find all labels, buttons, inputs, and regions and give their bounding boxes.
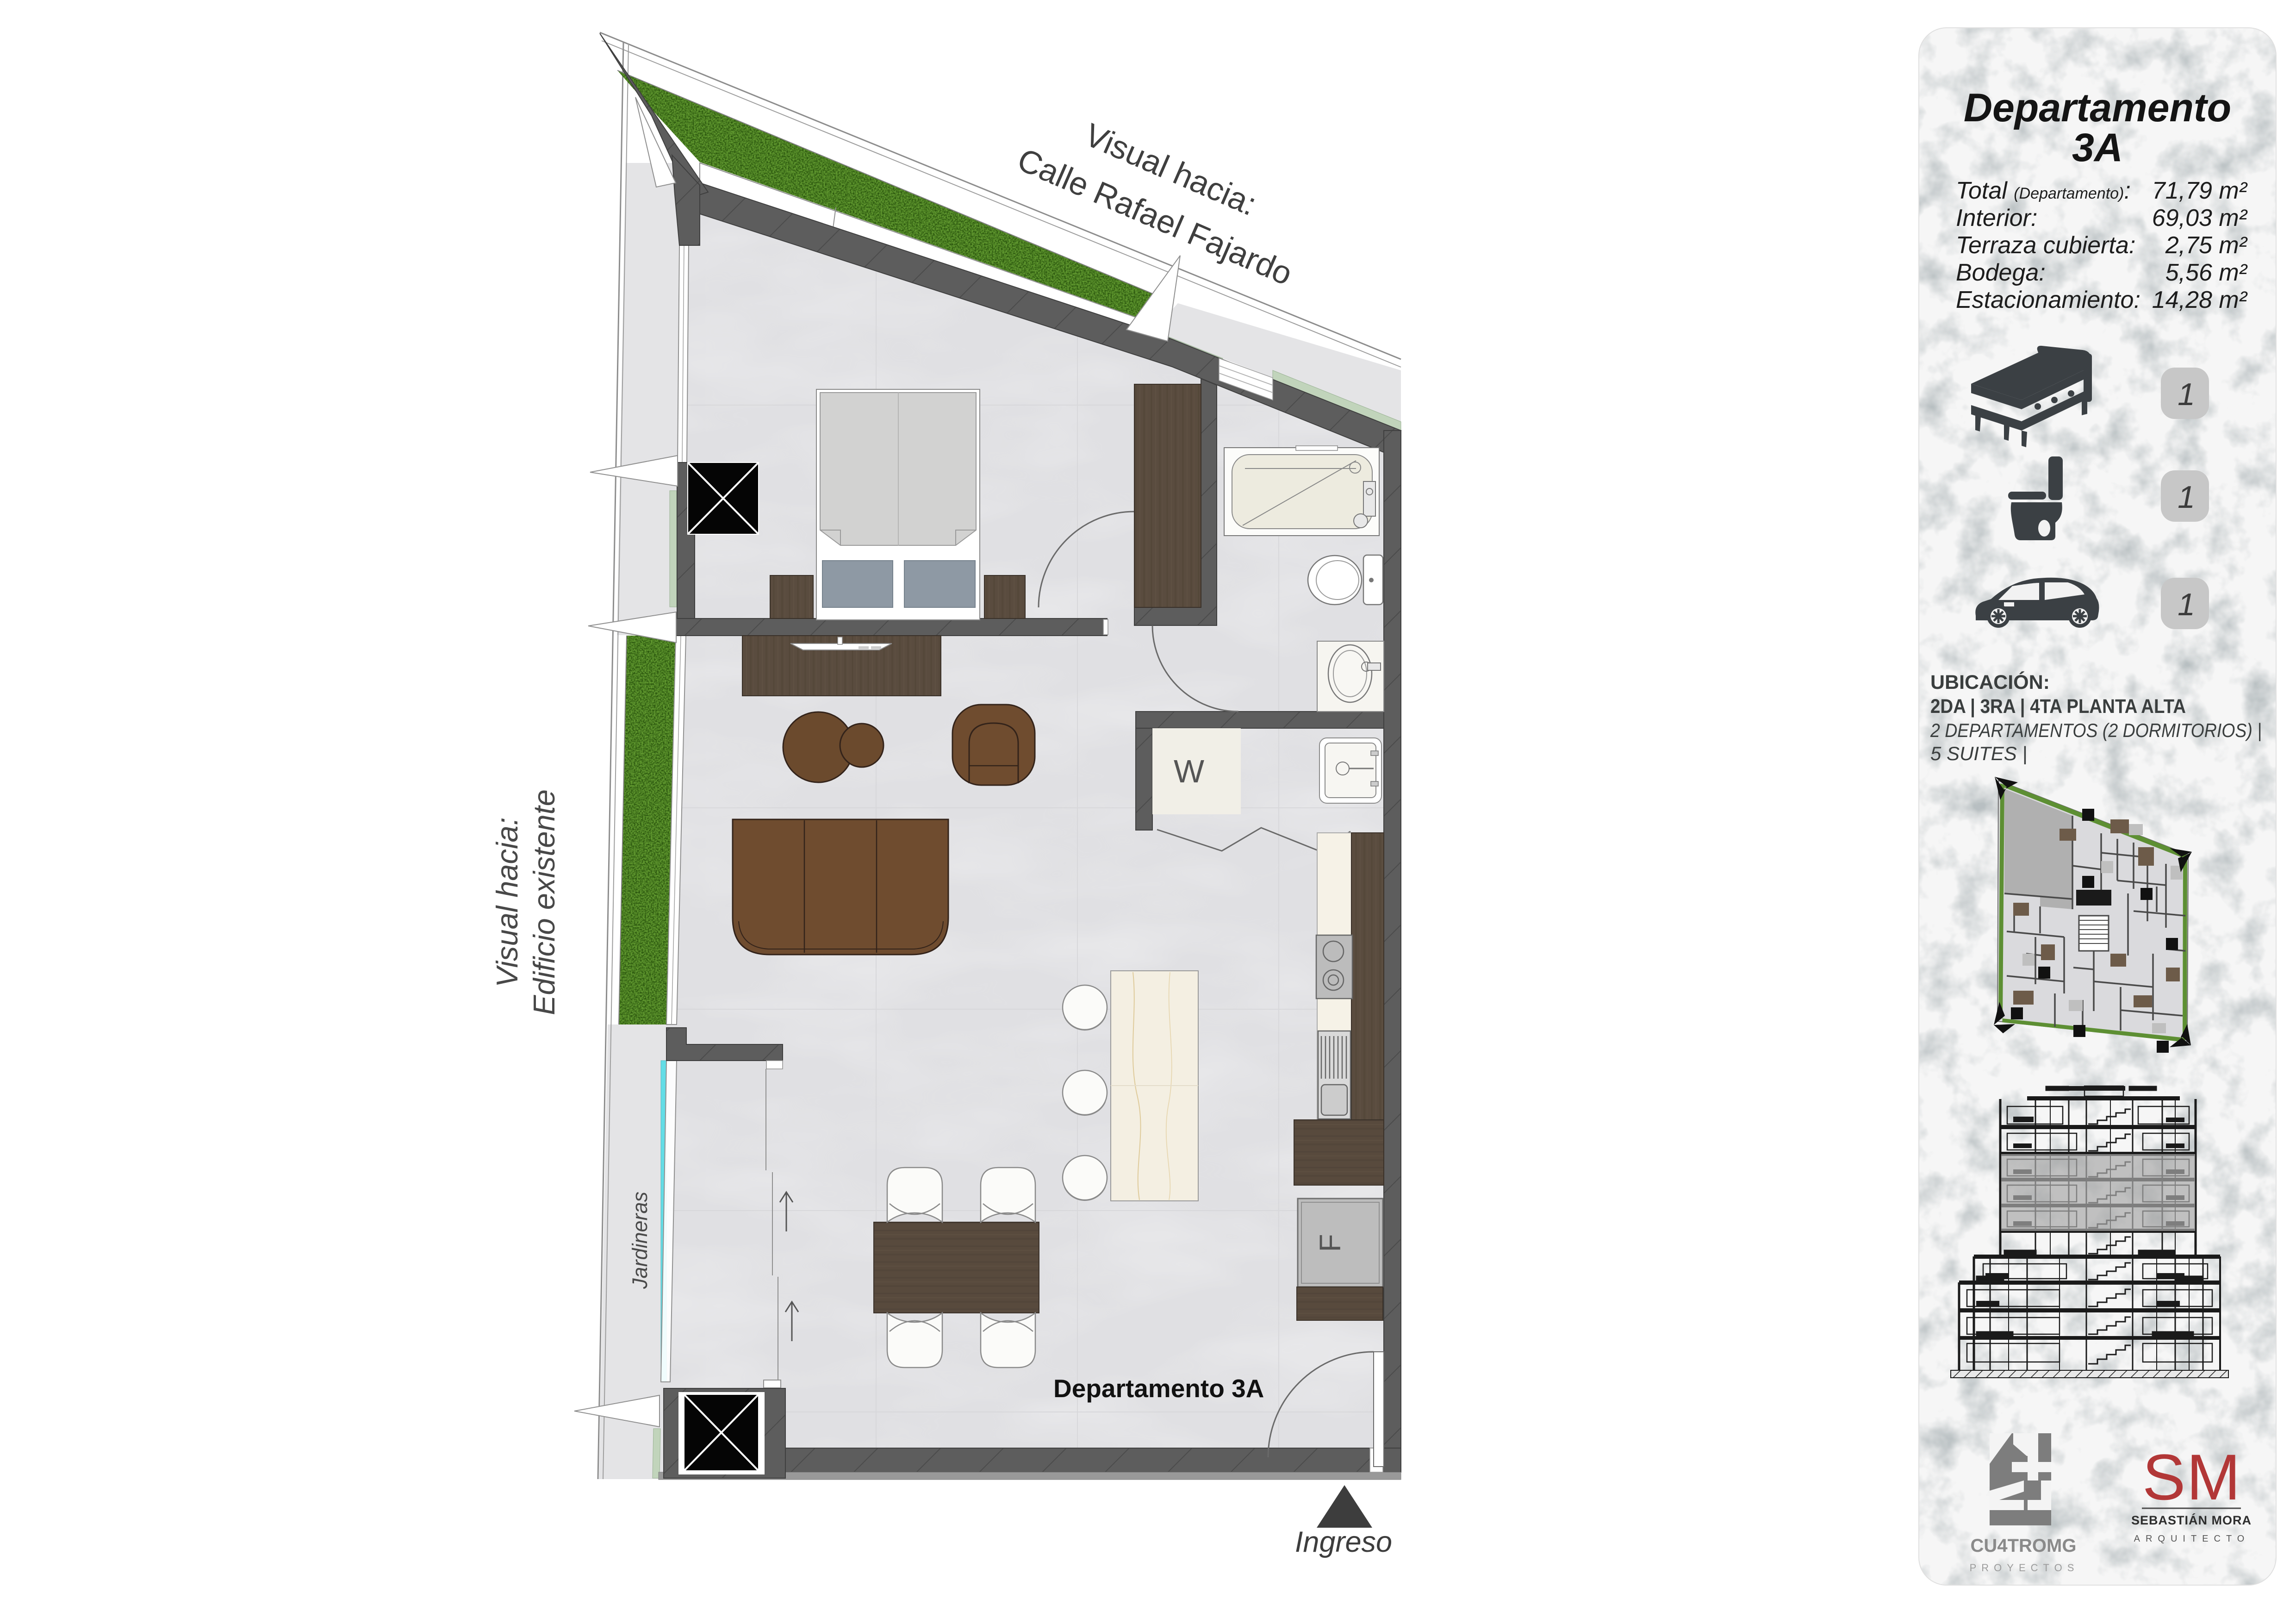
svg-text:SEBASTIÁN MORA: SEBASTIÁN MORA [2131, 1513, 2252, 1527]
svg-text:3A: 3A [2072, 125, 2123, 170]
svg-text:Jardineras: Jardineras [628, 1192, 652, 1289]
svg-text:2 DEPARTAMENTOS (2 DORMITORIOS: 2 DEPARTAMENTOS (2 DORMITORIOS) | [1930, 719, 2262, 742]
svg-text:1: 1 [2178, 480, 2195, 515]
svg-text:Terraza cubierta:: Terraza cubierta: [1956, 232, 2135, 259]
svg-text:Departamento 3A: Departamento 3A [1053, 1374, 1264, 1403]
svg-text:UBICACIÓN:: UBICACIÓN: [1930, 671, 2050, 693]
svg-text:Edificio existente: Edificio existente [527, 789, 561, 1015]
svg-text:5,56 m²: 5,56 m² [2165, 259, 2248, 286]
svg-text:SM: SM [2142, 1441, 2241, 1513]
svg-text:CU4TROMG: CU4TROMG [1971, 1536, 2077, 1556]
svg-text:Bodega:: Bodega: [1956, 259, 2046, 286]
svg-text:1: 1 [2178, 587, 2195, 622]
svg-text:Ingreso: Ingreso [1295, 1526, 1392, 1558]
svg-text:1: 1 [2178, 377, 2195, 412]
svg-text:Estacionamiento:: Estacionamiento: [1956, 287, 2140, 313]
svg-text:Departamento: Departamento [1964, 86, 2231, 130]
svg-text:ARQUITECTO: ARQUITECTO [2134, 1534, 2250, 1544]
svg-text:2,75 m²: 2,75 m² [2165, 232, 2248, 259]
svg-text:69,03 m²: 69,03 m² [2152, 205, 2248, 231]
svg-text:5 SUITES |: 5 SUITES | [1930, 743, 2027, 765]
svg-text:PROYECTOS: PROYECTOS [1970, 1562, 2079, 1574]
svg-text:71,79 m²: 71,79 m² [2152, 177, 2248, 204]
svg-text:Interior:: Interior: [1956, 205, 2037, 231]
svg-text:Visual hacia:: Visual hacia: [490, 817, 524, 987]
svg-text:F: F [1313, 1234, 1347, 1252]
svg-text:14,28 m²: 14,28 m² [2152, 287, 2248, 313]
svg-text:W: W [1174, 753, 1204, 789]
svg-text:2DA | 3RA | 4TA PLANTA ALTA: 2DA | 3RA | 4TA PLANTA ALTA [1930, 695, 2186, 718]
